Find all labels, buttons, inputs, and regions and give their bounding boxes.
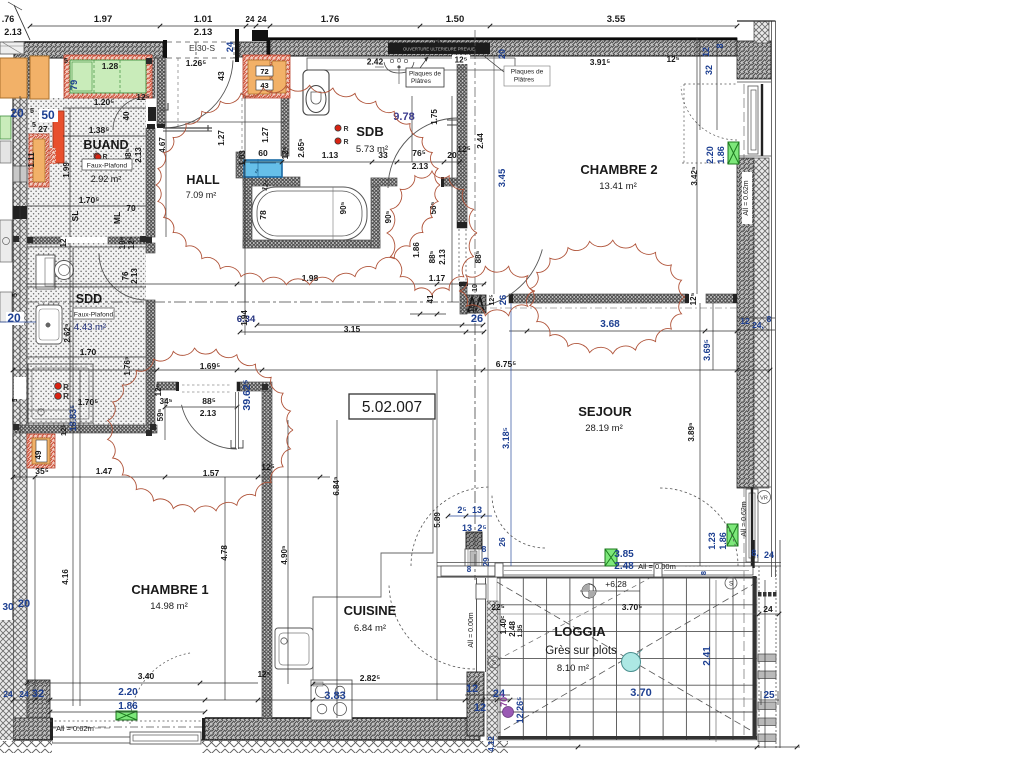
- svg-text:40: 40: [122, 111, 131, 120]
- svg-text:Plâtres: Plâtres: [411, 78, 431, 85]
- svg-text:2.20: 2.20: [118, 687, 138, 698]
- svg-text:20: 20: [447, 150, 457, 160]
- svg-text:20: 20: [18, 598, 30, 610]
- svg-text:1.47: 1.47: [96, 466, 113, 476]
- svg-text:24: 24: [3, 689, 13, 699]
- svg-text:8: 8: [482, 544, 487, 554]
- svg-text:Faux-Plafond: Faux-Plafond: [87, 163, 128, 170]
- svg-text:12: 12: [701, 47, 711, 57]
- svg-text:28.19 m²: 28.19 m²: [585, 423, 623, 434]
- svg-text:1.17: 1.17: [429, 273, 446, 283]
- svg-text:12⁵: 12⁵: [154, 383, 163, 396]
- svg-text:8: 8: [467, 565, 472, 574]
- svg-text:3.45: 3.45: [497, 168, 508, 187]
- svg-text:70: 70: [126, 203, 136, 213]
- svg-text:1.86: 1.86: [718, 532, 728, 550]
- svg-text:1.75: 1.75: [430, 109, 439, 125]
- svg-text:R: R: [63, 383, 69, 392]
- svg-text:3.18⁵: 3.18⁵: [501, 427, 511, 449]
- svg-text:2.13: 2.13: [194, 27, 213, 38]
- svg-text:3.69⁵: 3.69⁵: [702, 339, 712, 361]
- svg-text:10: 10: [472, 284, 479, 292]
- svg-text:6.84⁵: 6.84⁵: [332, 476, 341, 496]
- svg-text:88⁵: 88⁵: [428, 250, 437, 263]
- svg-text:1.27: 1.27: [217, 130, 226, 146]
- svg-text:All = 0.62m: All = 0.62m: [743, 180, 750, 215]
- svg-text:3.85: 3.85: [614, 549, 634, 560]
- svg-text:Faux-Plafond: Faux-Plafond: [74, 312, 114, 319]
- svg-text:76⁵: 76⁵: [412, 148, 425, 158]
- svg-text:1.13: 1.13: [322, 150, 339, 160]
- svg-text:3.15: 3.15: [344, 324, 361, 334]
- svg-text:29: 29: [481, 557, 491, 567]
- svg-text:43: 43: [260, 81, 268, 90]
- svg-text:12: 12: [466, 683, 478, 695]
- svg-text:25: 25: [763, 690, 775, 701]
- svg-text:60: 60: [258, 148, 268, 158]
- svg-text:SEJOUR: SEJOUR: [578, 404, 632, 419]
- svg-text:Plaques de: Plaques de: [409, 71, 441, 78]
- svg-text:12⁵: 12⁵: [127, 236, 136, 249]
- svg-text:1.86: 1.86: [716, 146, 726, 164]
- svg-text:39.62⁵: 39.62⁵: [241, 379, 253, 410]
- svg-text:2.13: 2.13: [134, 147, 143, 163]
- svg-text:1.94: 1.94: [240, 310, 249, 326]
- svg-text:3.83: 3.83: [324, 690, 345, 702]
- svg-text:13: 13: [462, 523, 472, 533]
- svg-text:1.57: 1.57: [203, 468, 220, 478]
- svg-text:S: S: [492, 661, 496, 667]
- svg-text:12,26⁵: 12,26⁵: [515, 697, 525, 724]
- svg-text:24: 24: [246, 15, 255, 24]
- svg-text:72: 72: [260, 67, 268, 76]
- svg-text:5: 5: [32, 122, 36, 129]
- svg-text:12⁵: 12⁵: [667, 55, 680, 64]
- svg-text:3.70⁵: 3.70⁵: [622, 602, 643, 612]
- svg-text:3.40: 3.40: [138, 671, 155, 681]
- svg-text:SL: SL: [70, 211, 80, 222]
- svg-text:3.42⁵: 3.42⁵: [690, 166, 699, 186]
- svg-text:.76: .76: [2, 14, 15, 24]
- svg-text:2.82⁵: 2.82⁵: [360, 673, 381, 683]
- svg-text:10⁵: 10⁵: [118, 236, 127, 249]
- svg-text:5: 5: [435, 39, 442, 43]
- svg-text:8: 8: [767, 314, 772, 324]
- svg-text:5: 5: [12, 293, 19, 297]
- svg-text:5.02.007: 5.02.007: [362, 399, 422, 416]
- svg-text:1.98: 1.98: [302, 273, 319, 283]
- svg-text:50: 50: [41, 108, 55, 122]
- svg-text:8.10 m²: 8.10 m²: [557, 663, 589, 674]
- svg-text:90⁵: 90⁵: [339, 201, 348, 214]
- svg-text:12⁵: 12⁵: [59, 424, 68, 436]
- svg-text:1.01: 1.01: [194, 14, 213, 25]
- svg-text:1.03: 1.03: [238, 150, 247, 166]
- svg-text:1.35: 1.35: [517, 624, 524, 637]
- svg-text:32: 32: [704, 65, 714, 75]
- svg-text:1.40ᶜ: 1.40ᶜ: [499, 616, 508, 635]
- svg-text:2.48: 2.48: [614, 561, 634, 572]
- svg-text:12: 12: [59, 238, 68, 247]
- svg-text:20: 20: [7, 311, 21, 325]
- svg-text:13: 13: [472, 505, 482, 515]
- svg-text:1.69⁵: 1.69⁵: [200, 361, 221, 371]
- svg-text:4.12: 4.12: [487, 736, 496, 752]
- svg-text:59⁵: 59⁵: [156, 408, 165, 421]
- svg-text:1.20⁵: 1.20⁵: [94, 97, 115, 107]
- svg-text:2.13: 2.13: [200, 408, 217, 418]
- svg-text:+6,28: +6,28: [605, 579, 627, 589]
- svg-text:All = 0.62m: All = 0.62m: [56, 724, 94, 733]
- svg-text:3.91⁵: 3.91⁵: [590, 57, 611, 67]
- svg-text:26: 26: [471, 313, 483, 325]
- svg-text:43: 43: [216, 71, 226, 81]
- svg-text:R: R: [343, 126, 348, 133]
- svg-text:20: 20: [10, 106, 24, 120]
- svg-text:12⁵: 12⁵: [281, 146, 290, 159]
- svg-text:R: R: [343, 139, 348, 146]
- svg-text:All = 0.00m: All = 0.00m: [638, 562, 676, 571]
- svg-text:24: 24: [19, 689, 29, 699]
- svg-text:SDB: SDB: [356, 124, 383, 139]
- svg-text:2.41: 2.41: [702, 646, 713, 666]
- svg-text:49: 49: [34, 450, 43, 459]
- svg-text:24: 24: [225, 41, 236, 52]
- svg-text:2.44: 2.44: [476, 133, 485, 149]
- svg-text:30: 30: [2, 602, 14, 613]
- svg-text:12⁵: 12⁵: [455, 56, 468, 65]
- svg-text:20: 20: [497, 49, 507, 59]
- svg-text:S: S: [729, 582, 733, 588]
- svg-text:3.55: 3.55: [607, 14, 626, 25]
- svg-text:1.50: 1.50: [446, 14, 465, 25]
- svg-text:2.62⁵: 2.62⁵: [63, 323, 72, 343]
- svg-text:5.89: 5.89: [433, 512, 442, 528]
- svg-text:12⁵: 12⁵: [489, 294, 496, 305]
- svg-text:32: 32: [32, 688, 44, 700]
- svg-text:12⁵: 12⁵: [689, 292, 698, 305]
- svg-text:1.86: 1.86: [118, 701, 138, 712]
- svg-text:8,: 8,: [751, 548, 759, 558]
- svg-text:2.48: 2.48: [508, 621, 517, 637]
- svg-text:79: 79: [69, 80, 80, 91]
- svg-text:CUISINE: CUISINE: [344, 603, 397, 618]
- svg-text:12⁵: 12⁵: [457, 144, 470, 154]
- svg-text:OUVERTURE ULTERIEURE PREVUE: OUVERTURE ULTERIEURE PREVUE: [403, 47, 475, 52]
- svg-text:ML: ML: [112, 212, 122, 224]
- svg-text:1.38⁵: 1.38⁵: [89, 125, 110, 135]
- svg-text:76: 76: [121, 271, 130, 280]
- svg-text:35⁵: 35⁵: [35, 466, 48, 476]
- svg-text:9.78: 9.78: [393, 111, 414, 123]
- svg-text:12⁵: 12⁵: [261, 462, 274, 472]
- svg-text:14.98 m²: 14.98 m²: [150, 601, 188, 612]
- svg-text:8: 8: [699, 571, 708, 575]
- svg-text:All = 0.00m: All = 0.00m: [468, 612, 475, 647]
- svg-text:SDD: SDD: [76, 292, 102, 306]
- svg-text:1.23: 1.23: [707, 532, 717, 550]
- svg-text:4.67: 4.67: [158, 137, 167, 153]
- svg-text:4.16: 4.16: [61, 569, 70, 585]
- svg-text:2.42: 2.42: [367, 57, 384, 67]
- svg-text:1.70: 1.70: [80, 347, 97, 357]
- svg-text:4.78: 4.78: [220, 545, 229, 561]
- svg-text:24: 24: [764, 550, 774, 560]
- svg-text:2.92 m²: 2.92 m²: [91, 174, 122, 184]
- svg-text:LOGGIA: LOGGIA: [554, 624, 606, 639]
- svg-text:Plaques de: Plaques de: [511, 69, 544, 76]
- svg-text:8: 8: [715, 43, 725, 48]
- svg-text:12⁵: 12⁵: [258, 670, 271, 679]
- svg-text:HALL: HALL: [186, 173, 220, 187]
- svg-text:22⁵: 22⁵: [491, 602, 504, 612]
- svg-text:13.41 m²: 13.41 m²: [599, 181, 637, 192]
- svg-text:88⁵: 88⁵: [202, 396, 215, 406]
- svg-text:Plâtres: Plâtres: [514, 77, 535, 84]
- svg-text:2.13: 2.13: [412, 161, 429, 171]
- svg-text:2.65⁵: 2.65⁵: [297, 138, 306, 158]
- svg-text:Grès sur plots: Grès sur plots: [545, 645, 617, 657]
- svg-text:70⁷: 70⁷: [499, 693, 509, 707]
- svg-text:5: 5: [30, 108, 34, 115]
- svg-text:78: 78: [258, 210, 268, 220]
- svg-text:1.28: 1.28: [102, 61, 119, 71]
- svg-text:5: 5: [64, 58, 68, 65]
- svg-text:12: 12: [474, 702, 486, 714]
- svg-text:1.26⁵: 1.26⁵: [186, 58, 207, 68]
- svg-text:6.75⁵: 6.75⁵: [496, 359, 517, 369]
- svg-text:BUAND: BUAND: [83, 138, 128, 152]
- svg-text:1.70⁵: 1.70⁵: [78, 397, 99, 407]
- svg-text:34⁵: 34⁵: [160, 397, 173, 406]
- svg-text:VR: VR: [760, 496, 768, 502]
- svg-text:2⁵: 2⁵: [477, 523, 486, 533]
- svg-text:26: 26: [497, 537, 507, 547]
- svg-text:2.13: 2.13: [4, 27, 22, 37]
- svg-text:2⁵: 2⁵: [457, 505, 466, 515]
- svg-text:4.43 m²: 4.43 m²: [74, 322, 106, 333]
- svg-text:1.97: 1.97: [94, 14, 113, 25]
- svg-text:90⁵: 90⁵: [384, 210, 393, 223]
- svg-text:1.76⁵: 1.76⁵: [123, 356, 132, 376]
- svg-text:7.09 m²: 7.09 m²: [186, 190, 217, 200]
- svg-text:3.68: 3.68: [600, 319, 620, 330]
- svg-text:1.86: 1.86: [412, 242, 421, 258]
- svg-text:24: 24: [763, 604, 773, 614]
- svg-text:41: 41: [426, 294, 435, 303]
- svg-text:EI30-S: EI30-S: [189, 43, 215, 53]
- svg-text:3.70: 3.70: [630, 687, 651, 699]
- svg-text:All = 0.62m: All = 0.62m: [741, 501, 748, 536]
- svg-text:1.70⁵: 1.70⁵: [79, 195, 100, 205]
- svg-text:12⁵: 12⁵: [136, 92, 149, 102]
- svg-text:CHAMBRE 1: CHAMBRE 1: [131, 582, 208, 597]
- svg-text:2.13: 2.13: [438, 249, 447, 265]
- svg-text:2.20: 2.20: [705, 146, 715, 164]
- svg-text:33: 33: [378, 150, 388, 160]
- svg-text:2.13: 2.13: [130, 268, 139, 284]
- svg-text:26: 26: [498, 295, 509, 306]
- svg-text:1.11: 1.11: [27, 152, 36, 168]
- svg-text:6.84 m²: 6.84 m²: [354, 623, 386, 634]
- svg-text:3.89⁵: 3.89⁵: [687, 422, 696, 442]
- svg-text:CHAMBRE 2: CHAMBRE 2: [580, 162, 657, 177]
- svg-text:1.76: 1.76: [321, 14, 340, 25]
- svg-text:12: 12: [740, 316, 750, 326]
- svg-text:4.90⁵: 4.90⁵: [280, 545, 289, 565]
- svg-text:24,: 24,: [752, 320, 764, 330]
- svg-text:24: 24: [258, 15, 267, 24]
- svg-text:18⁵: 18⁵: [469, 301, 476, 312]
- svg-text:R: R: [63, 392, 69, 401]
- svg-text:27: 27: [38, 124, 48, 134]
- svg-text:1.27: 1.27: [261, 127, 270, 143]
